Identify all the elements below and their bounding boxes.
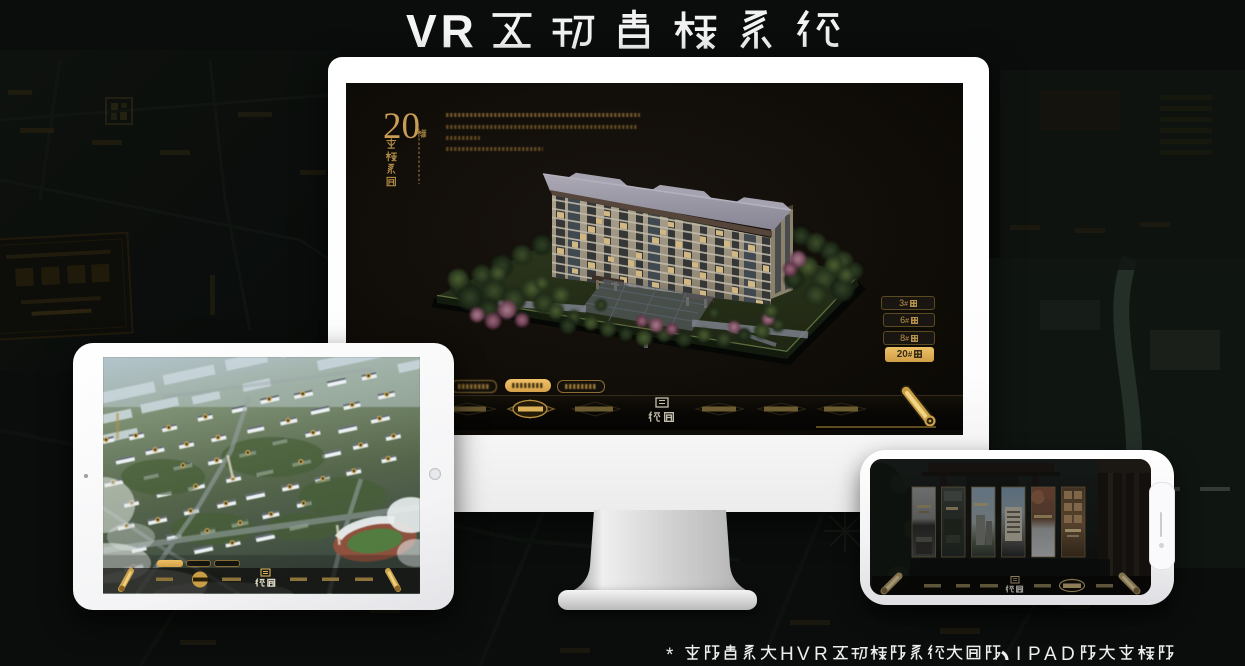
- svg-text:V: V: [797, 644, 810, 664]
- svg-text:H: H: [780, 644, 794, 664]
- svg-text:D: D: [1061, 644, 1075, 664]
- svg-text:P: P: [1028, 644, 1041, 664]
- svg-text:R: R: [814, 644, 828, 664]
- svg-text:A: A: [1044, 644, 1057, 664]
- svg-text:I: I: [1016, 644, 1021, 664]
- svg-text:VR: VR: [406, 5, 478, 55]
- svg-text:*: *: [666, 645, 674, 664]
